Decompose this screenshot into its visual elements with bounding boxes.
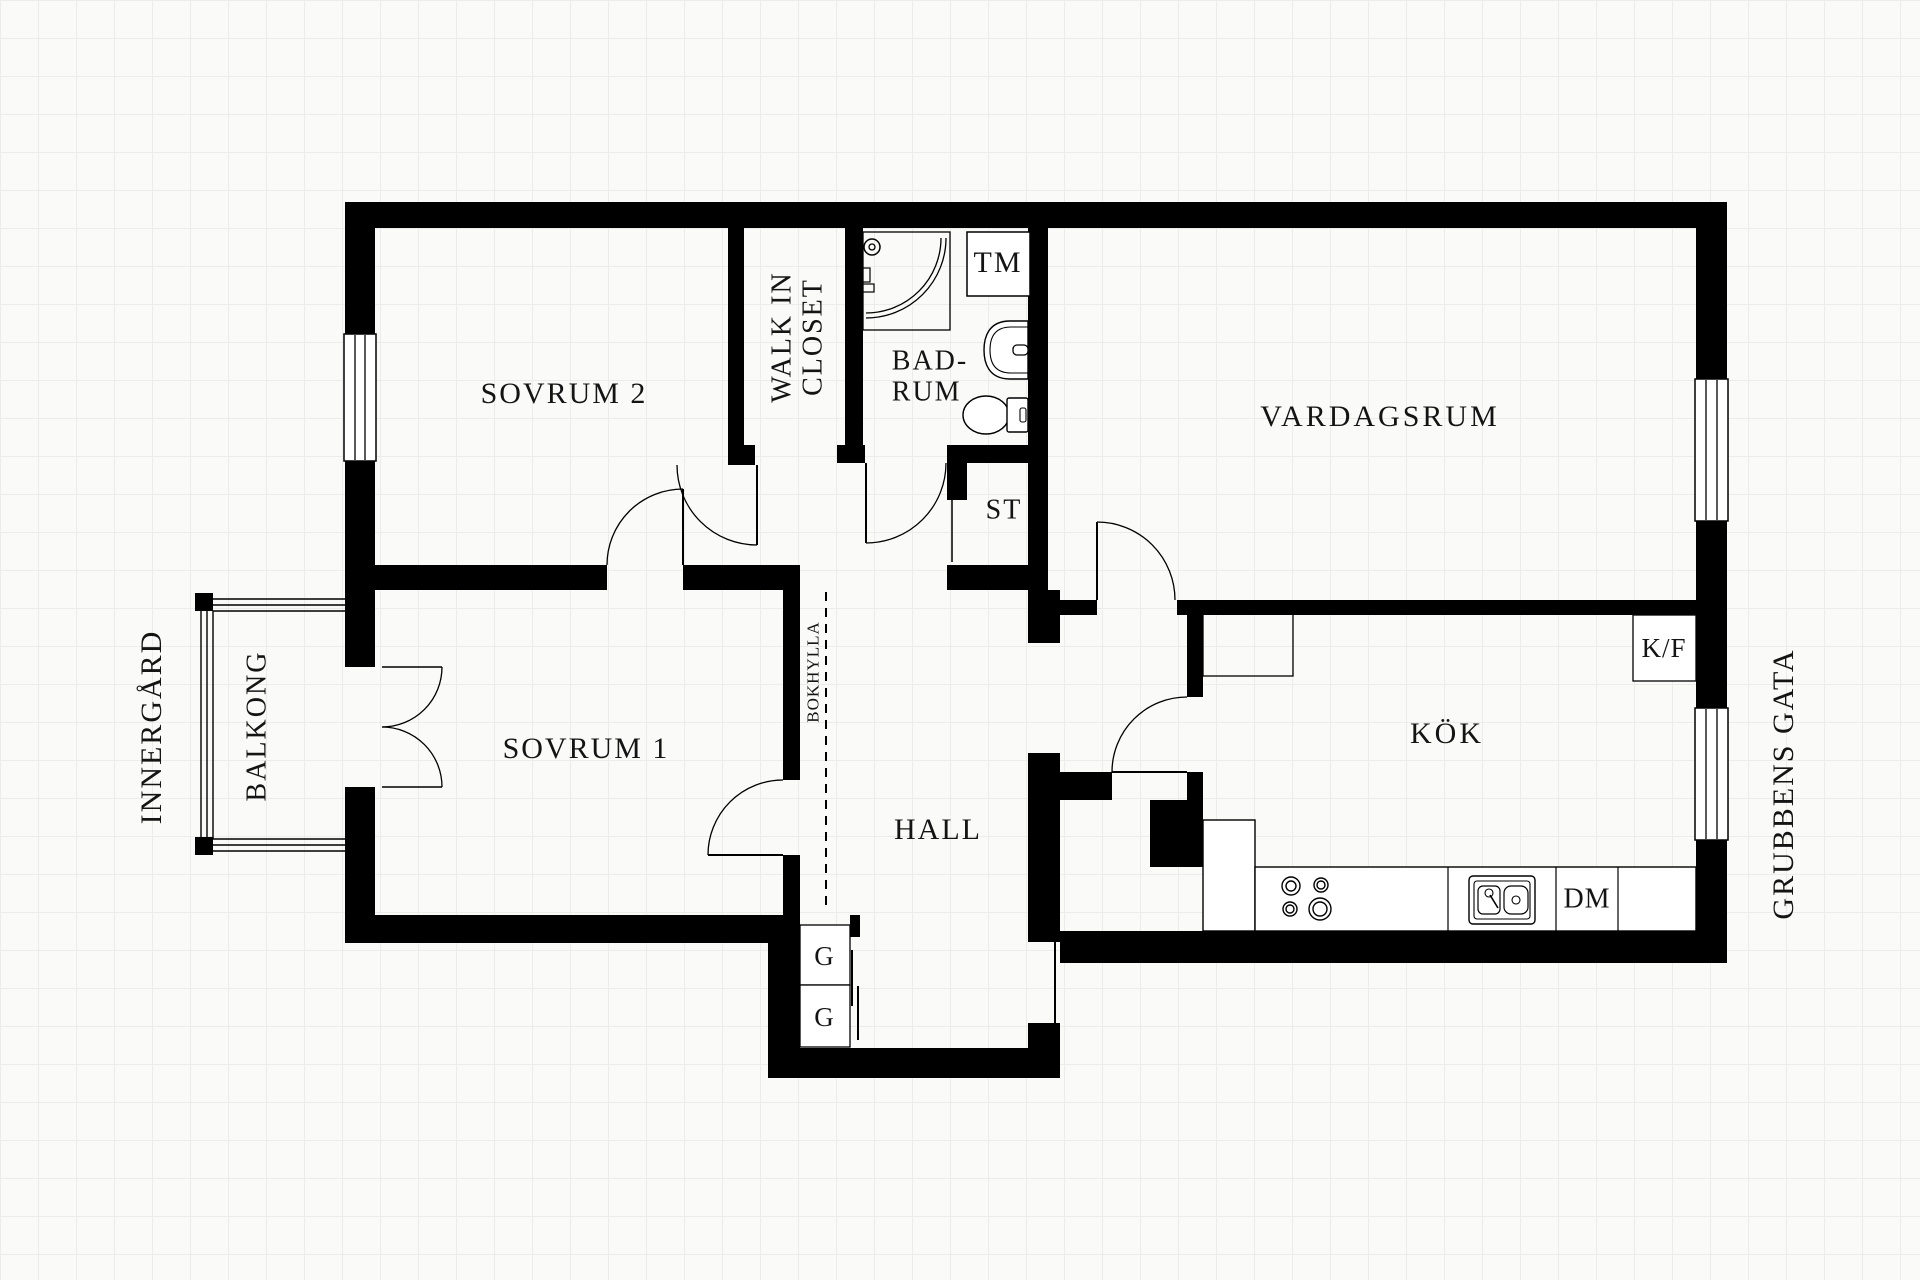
walk-in-closet-line2: CLOSET [798,278,829,396]
badrum-line2: RUM [892,377,962,408]
fixture-label-g-upper: G [814,941,836,971]
kitchen-sink-icon [1469,876,1535,924]
fixture-label-g-lower: G [814,1002,836,1032]
fixture-label-kf: K/F [1641,633,1686,663]
room-label-vardagsrum: VARDAGSRUM [1260,400,1500,434]
room-label-balkong: BALKONG [241,651,272,802]
kitchen-counter [1203,820,1696,931]
room-label-hall: HALL [894,813,982,847]
door-badrum [866,463,946,543]
fixture-label-dm: DM [1563,883,1610,914]
door-sovrum2 [607,489,683,565]
room-label-walk-in-closet: WALK IN CLOSET [767,271,830,402]
window-sovrum2 [344,334,376,461]
kitchen-cabinet-outline [1203,614,1293,676]
room-label-kok: KÖK [1410,717,1484,751]
window-vardagsrum [1695,379,1728,521]
door-walk-in-closet [677,465,757,545]
fixture-label-bokhylla: BOKHYLLA [803,621,822,723]
balcony-door [382,667,442,787]
room-label-sovrum1: SOVRUM 1 [503,732,670,766]
shower-icon [861,232,950,330]
toilet-icon [963,396,1028,434]
room-label-badrum: BAD- RUM [892,346,968,409]
floor-plan: SOVRUM 2 WALK IN CLOSET BAD- RUM TM ST V… [0,0,1920,1280]
badrum-line1: BAD- [892,346,968,377]
room-label-sovrum2: SOVRUM 2 [481,377,648,411]
outside-label-grubbens-gata: GRUBBENS GATA [1767,648,1801,919]
room-label-st: ST [986,494,1023,525]
outside-label-innergard: INNERGÅRD [135,630,169,825]
fixture-label-tm: TM [974,246,1023,280]
window-kok [1695,708,1728,840]
bathroom-sink-icon [984,321,1028,379]
balcony-railing [195,593,368,855]
door-vardagsrum [1097,522,1175,600]
walk-in-closet-line1: WALK IN [767,271,798,402]
door-sovrum1 [708,780,783,855]
plan-symbols [0,0,1920,1280]
door-kok [1112,697,1187,772]
